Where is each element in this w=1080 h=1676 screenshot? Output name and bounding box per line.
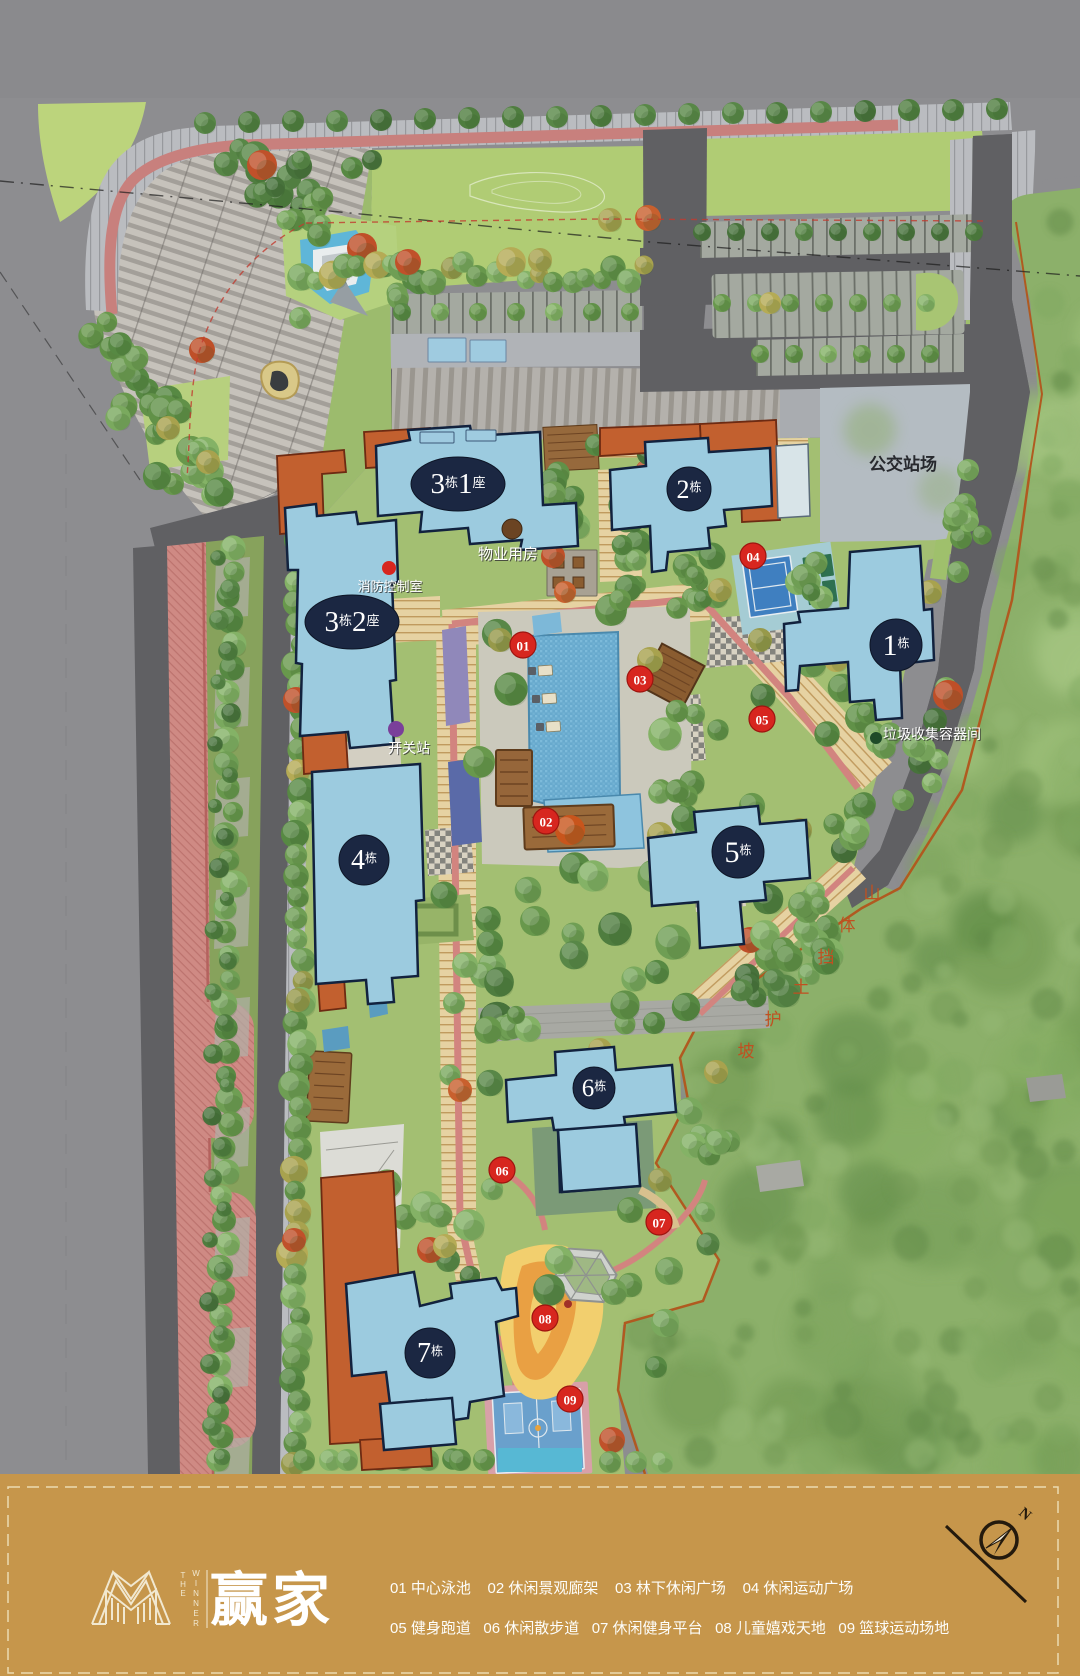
svg-text:护: 护 [765,1010,782,1029]
svg-text:05 健身跑道 06 休闲散步道 07 休闲健身平台: 05 健身跑道 06 休闲散步道 07 休闲健身平台 08 儿童嬉戏天地 09 … [390,1619,949,1637]
svg-text:消防控制室: 消防控制室 [357,579,422,594]
svg-text:W: W [192,1569,200,1578]
svg-text:07: 07 [653,1216,667,1231]
svg-text:H: H [180,1580,186,1589]
svg-text:05: 05 [756,713,770,728]
svg-text:09: 09 [564,1393,578,1408]
svg-text:02: 02 [540,815,553,830]
svg-text:公交站场: 公交站场 [869,454,937,474]
svg-text:赢家: 赢家 [210,1568,334,1633]
svg-text:I: I [195,1579,197,1588]
svg-text:E: E [193,1609,198,1618]
svg-text:坡: 坡 [738,1042,755,1061]
svg-text:03: 03 [634,673,648,688]
svg-text:R: R [193,1619,199,1628]
svg-text:开关站: 开关站 [388,740,430,756]
svg-text:T: T [181,1571,186,1580]
svg-text:挡: 挡 [818,948,835,967]
svg-text:N: N [193,1589,199,1598]
svg-text:04: 04 [747,550,761,565]
svg-text:01: 01 [517,639,530,654]
svg-text:06: 06 [496,1164,510,1179]
svg-text:土: 土 [793,978,810,997]
svg-text:山: 山 [864,884,881,903]
svg-text:01 中心泳池 02 休闲景观廊架 03 林下休: 01 中心泳池 02 休闲景观廊架 03 林下休闲广场 04 休闲运动广场 [390,1580,853,1597]
svg-text:垃圾收集容器间: 垃圾收集容器间 [883,726,981,742]
svg-text:N: N [193,1599,199,1608]
svg-text:体: 体 [839,916,856,935]
svg-text:物业用房: 物业用房 [478,546,538,563]
svg-text:08: 08 [539,1312,553,1327]
svg-text:E: E [180,1589,185,1598]
